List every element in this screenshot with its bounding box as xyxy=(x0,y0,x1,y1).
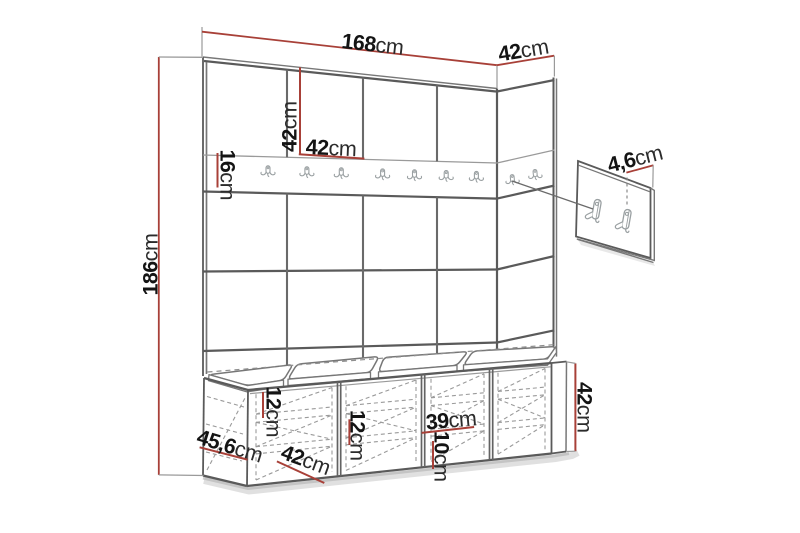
svg-text:42cm: 42cm xyxy=(573,382,597,433)
svg-text:16cm: 16cm xyxy=(216,150,240,201)
svg-text:42cm: 42cm xyxy=(278,101,302,152)
svg-text:12cm: 12cm xyxy=(262,387,286,438)
svg-text:186cm: 186cm xyxy=(139,233,163,295)
svg-text:10cm: 10cm xyxy=(429,431,453,482)
svg-text:12cm: 12cm xyxy=(346,410,370,461)
svg-text:42cm: 42cm xyxy=(305,135,357,161)
